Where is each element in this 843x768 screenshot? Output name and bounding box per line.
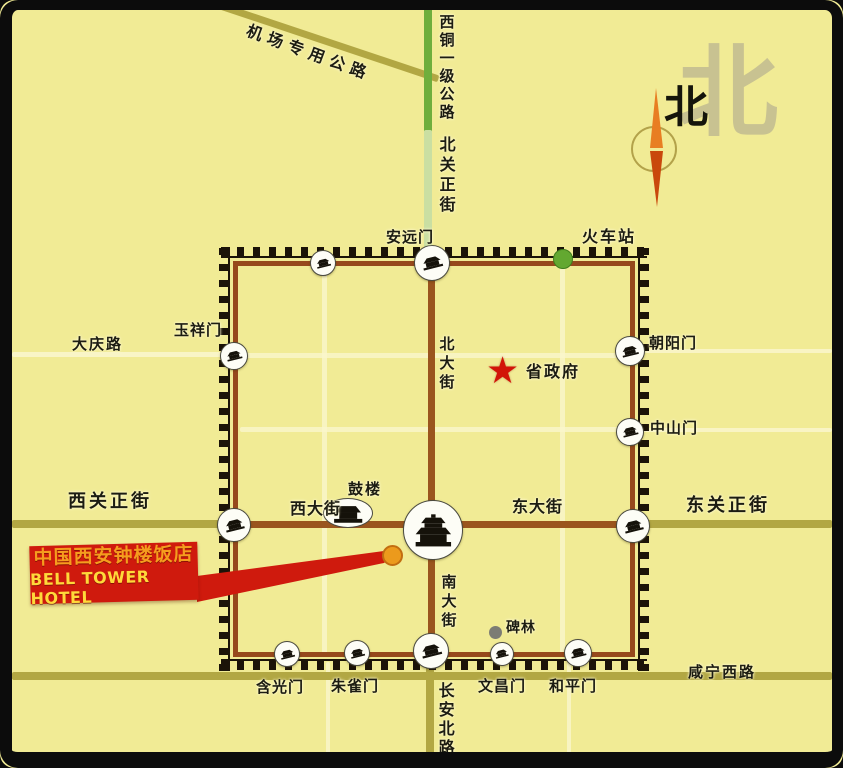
gate-tower-icon [619,423,642,441]
bell-tower-marker [403,500,463,560]
changan-north-road [426,661,434,754]
beidajie-label: 北大街 [438,336,455,393]
gate-anyuanmen [414,245,450,281]
gate-tower-icon [492,646,511,661]
city-wall-teeth-right [640,247,649,671]
gate-south [413,633,449,669]
gate-chaoyangmen [615,336,645,366]
gate-tower-icon [312,255,333,272]
xian-city-map: 中国西安钟楼饭店 BELL TOWER HOTEL ★机场专用公路西铜一级公路北… [0,0,843,768]
gate-west [217,508,251,542]
hotel-name-en: BELL TOWER HOTEL [30,565,199,607]
hepingmen-label: 和平门 [549,678,597,695]
gate-north-minor [310,250,336,276]
station-label: 火车站 [582,228,636,246]
gate-wenchangmen [490,642,514,666]
gate-tower-icon [220,514,248,536]
gate-tower-icon [346,645,367,662]
gate-tower-icon [223,347,246,365]
gate-hepingmen [564,639,592,667]
train-station-dot [553,249,573,269]
gate-zhongshanmen [616,418,644,446]
gate-hanguangmen [274,641,300,667]
gate-tower-icon [417,251,447,275]
hotel-banner: 中国西安钟楼饭店 BELL TOWER HOTEL [29,542,198,604]
hanguangmen-label: 含光门 [256,679,304,696]
beiguan-street-label: 北关正街 [437,136,455,216]
bell-tower-icon [409,511,458,549]
xidajie-label: 西大街 [290,500,341,518]
gov-label: 省政府 [526,363,580,381]
bei-nan-dajie-street [428,266,435,657]
yuxiangmen-label: 玉祥门 [174,322,222,339]
chaoyangmen-label: 朝阳门 [649,335,697,352]
wenchangmen-label: 文昌门 [478,678,526,695]
changan-road-label: 长安北路 [436,682,454,758]
xianning-road-label: 咸宁西路 [688,664,756,681]
zhongshanmen-label: 中山门 [650,420,698,437]
dongguan-street-label: 东关正街 [686,496,770,516]
gate-yuxiangmen [220,342,248,370]
map-stage: 中国西安钟楼饭店 BELL TOWER HOTEL ★机场专用公路西铜一级公路北… [0,0,843,768]
north-small-label: 北 [664,84,708,132]
gov-star-icon: ★ [486,352,519,389]
daqing-road-label: 大庆路 [72,336,123,353]
city-wall-teeth-left [219,247,228,671]
gate-tower-icon [276,646,297,663]
hotel-name-cn: 中国西安钟楼饭店 [33,538,194,569]
dongdajie-label: 东大街 [512,498,563,516]
gate-east [616,509,650,543]
gate-tower-icon [619,515,647,537]
beilin-dot [489,626,502,639]
xitong-highway-label: 西铜一级公路 [438,14,455,122]
gate-zhuquemen [344,640,370,666]
gate-tower-icon [567,644,590,662]
xitong-highway-green [424,8,432,132]
city-wall-line-right [638,247,640,671]
gulou-label: 鼓楼 [348,481,382,498]
nandajie-label: 南大街 [440,574,457,631]
xiguan-road [12,520,226,528]
xiguan-street-label: 西关正街 [68,492,152,512]
gate-tower-icon [416,639,446,663]
gate-tower-icon [618,341,643,360]
beilin-label: 碑林 [506,621,536,636]
city-wall-line-left [228,247,230,671]
hotel-location-dot [382,545,403,566]
dongguan-road [644,520,832,528]
airport-expressway [206,0,440,82]
zhuquemen-label: 朱雀门 [331,678,379,695]
anyuanmen-label: 安远门 [386,229,434,246]
